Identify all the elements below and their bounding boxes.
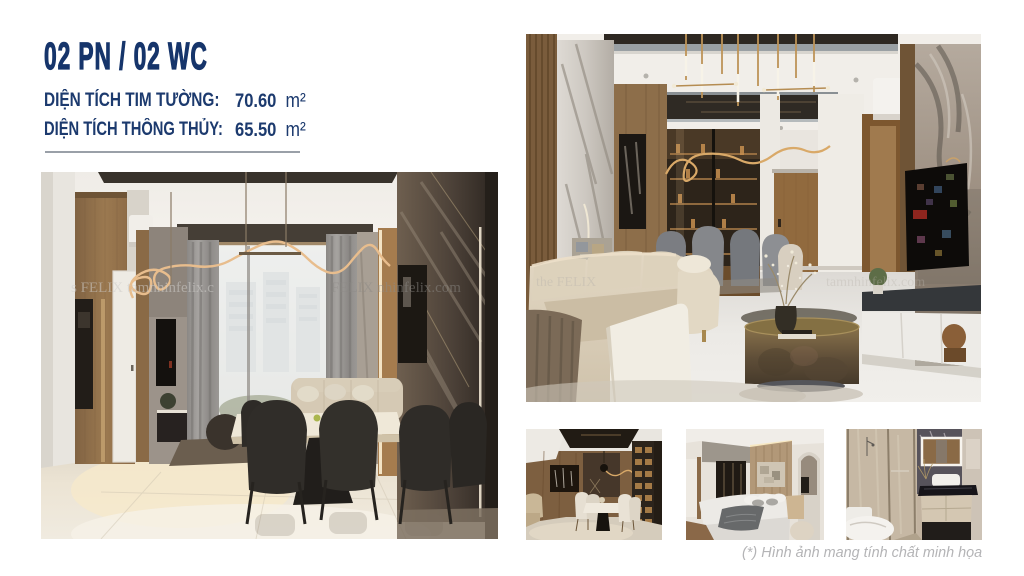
svg-text:tamnhinfelix.com: tamnhinfelix.com xyxy=(826,275,925,290)
svg-text:s FELIX tamnhinfelix.c: s FELIX tamnhinfelix.c xyxy=(71,280,214,296)
svg-text:the FELIX: the FELIX xyxy=(536,275,596,290)
svg-text:FELIX nhinfelix.com: FELIX nhinfelix.com xyxy=(331,280,461,296)
